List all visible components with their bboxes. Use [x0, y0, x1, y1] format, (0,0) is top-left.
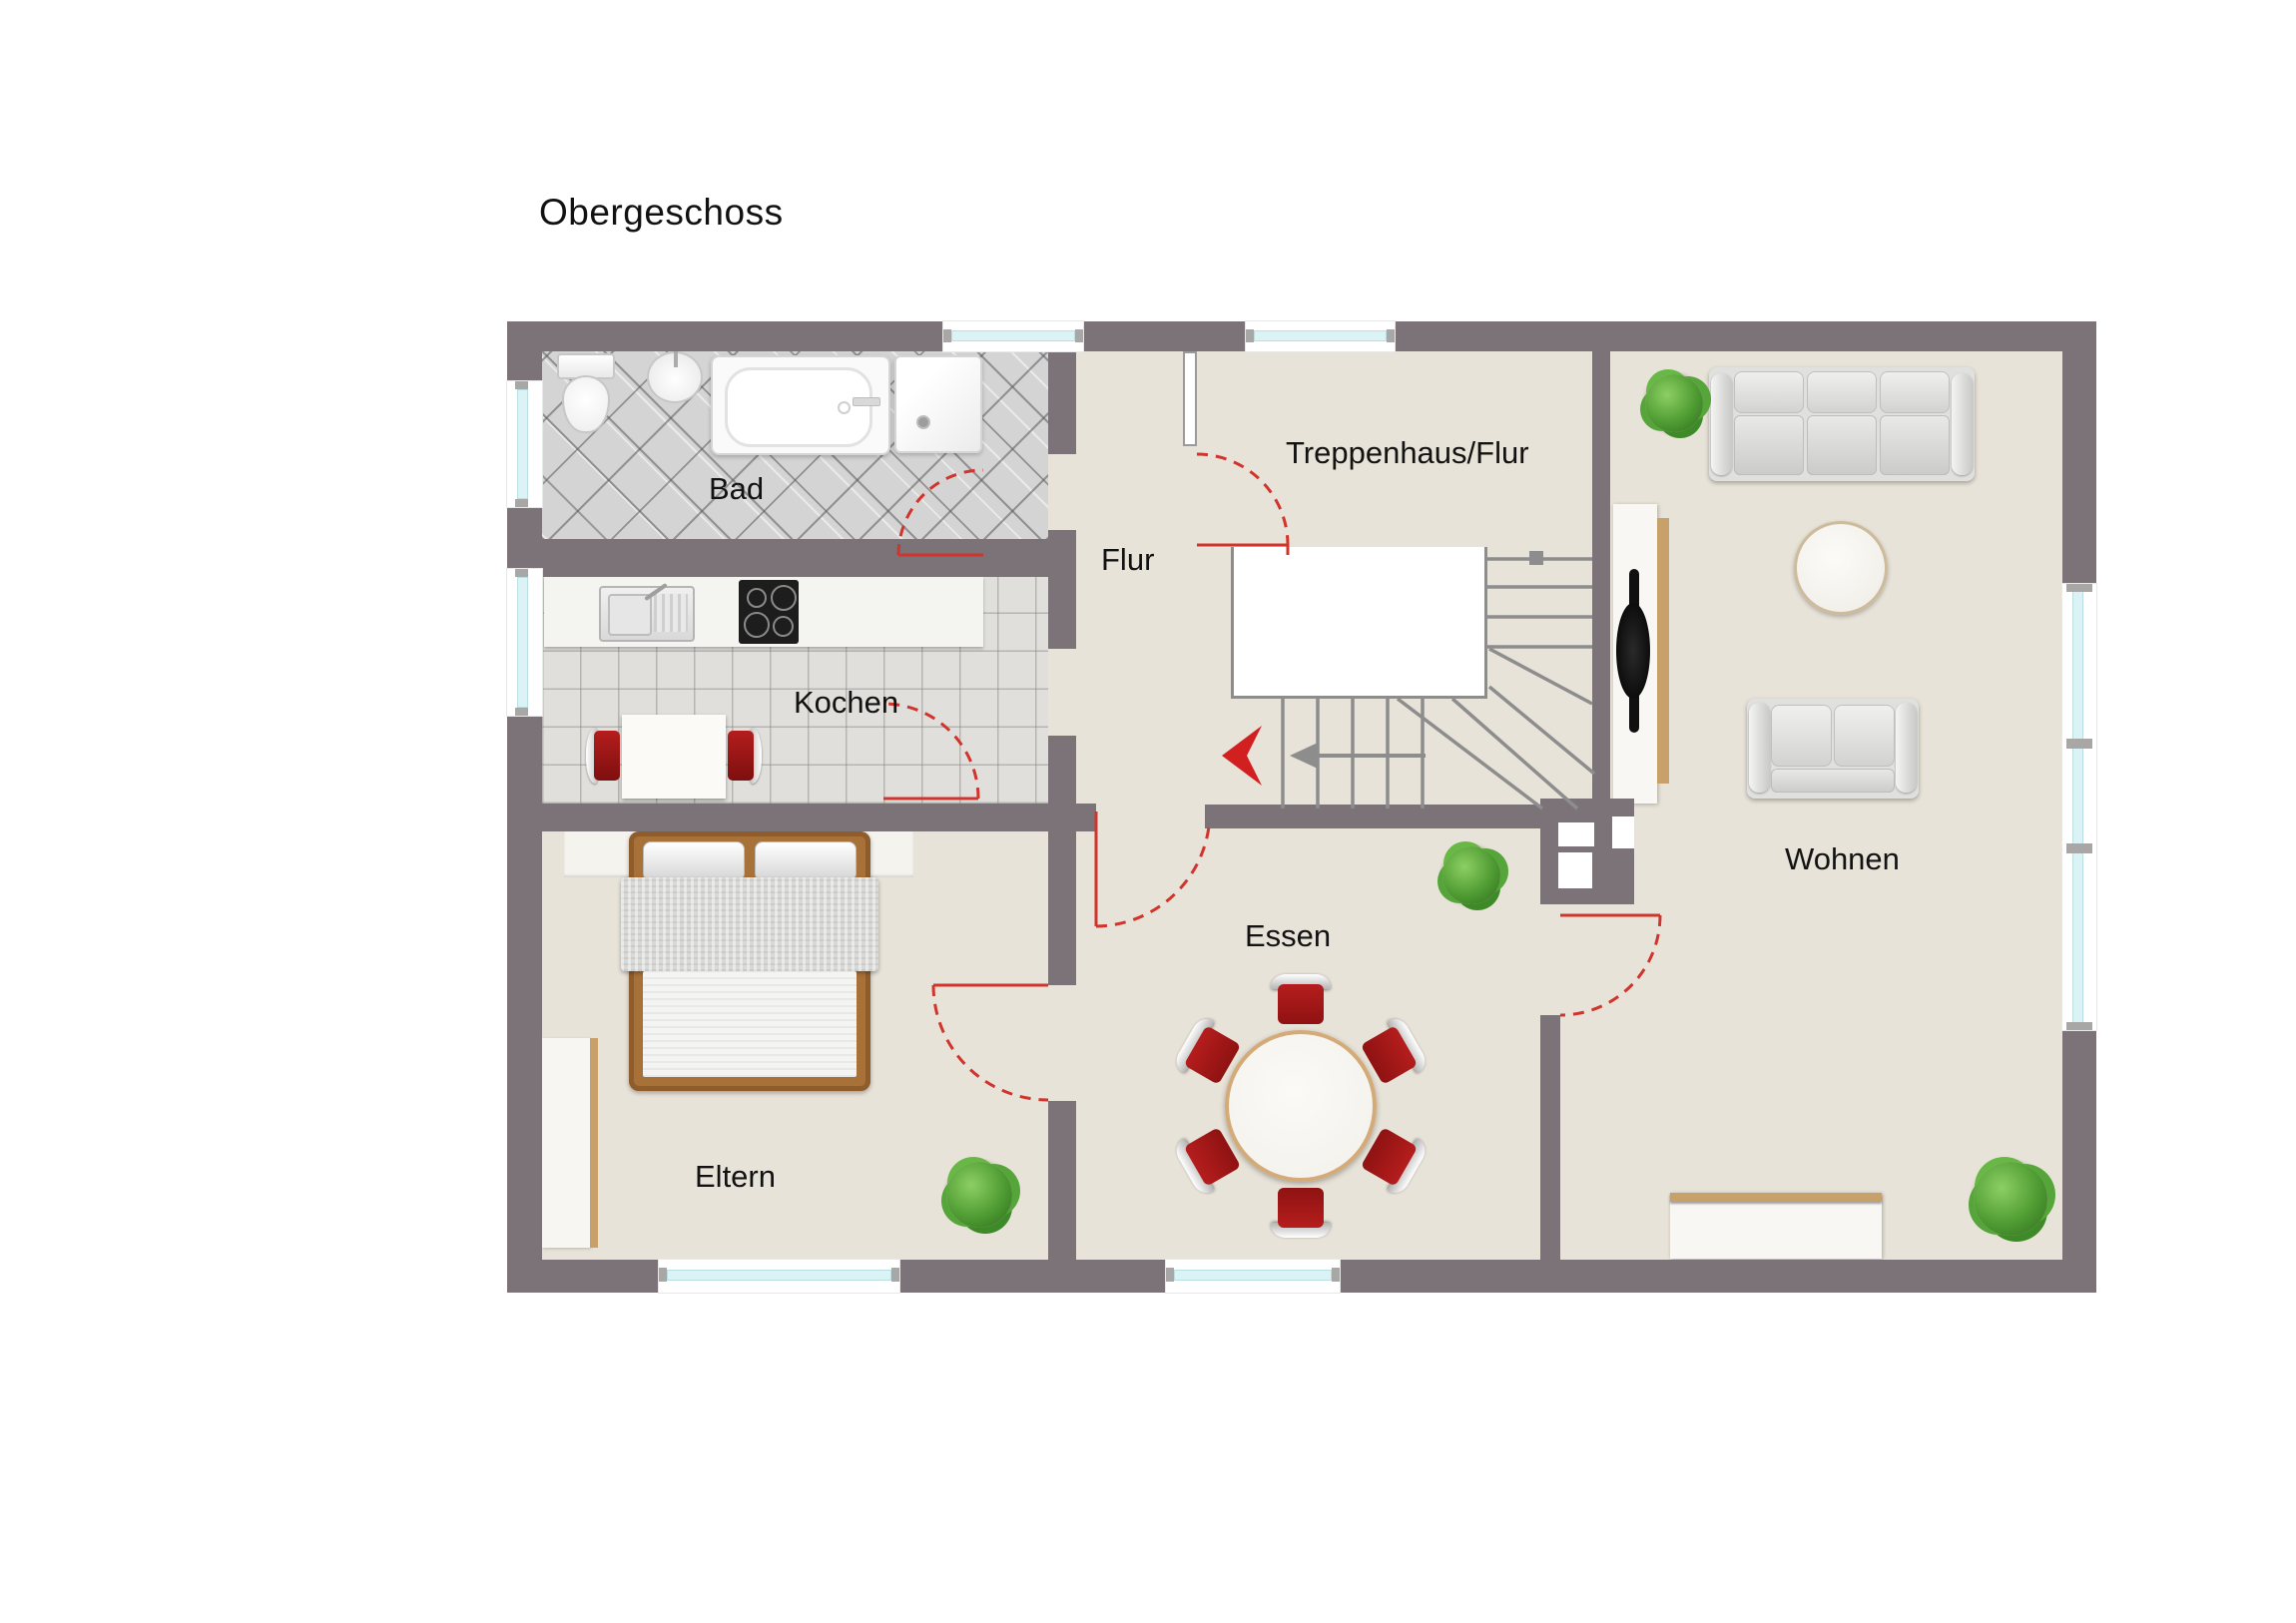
sofa-cushion — [1807, 371, 1877, 413]
window-cap — [1075, 329, 1083, 342]
wall-kochen-flur — [1048, 530, 1076, 649]
lowboard — [1670, 1193, 1882, 1259]
double-bed-icon — [629, 831, 870, 1091]
burner — [771, 585, 797, 611]
wardrobe — [542, 1038, 590, 1248]
burner — [747, 588, 767, 608]
dining-chair — [1269, 974, 1333, 1026]
bed-sheet — [643, 971, 857, 1077]
window-cap — [943, 329, 951, 342]
chimney-flue — [1558, 852, 1592, 888]
kitchen-chair — [589, 727, 625, 785]
sofa-seat — [1880, 415, 1950, 475]
room-label-essen: Essen — [1245, 918, 1331, 954]
sofa-2seat-icon — [1747, 699, 1919, 799]
window-cap — [2066, 584, 2092, 592]
room-label-kochen: Kochen — [794, 685, 898, 721]
window-cap — [515, 499, 528, 507]
wall-essen-wohnen — [1540, 1015, 1560, 1260]
cooktop-icon — [739, 580, 799, 644]
bathtub-icon — [711, 355, 890, 455]
window-cap — [1387, 329, 1395, 342]
window-glass — [517, 389, 528, 499]
window-glass — [2072, 590, 2083, 1025]
coffee-table-icon — [1794, 521, 1888, 615]
tv-screen-icon — [1616, 603, 1650, 699]
window-cap — [515, 569, 528, 577]
sofa-armrest — [1711, 373, 1732, 475]
sideboard-trim — [1657, 518, 1669, 784]
window-cap — [1246, 329, 1254, 342]
wall-kochen-eltern — [542, 804, 1076, 831]
window-mullion — [2066, 739, 2092, 749]
wall-flur-essen — [1048, 804, 1096, 831]
burner — [744, 612, 770, 638]
window-cap — [1332, 1268, 1340, 1282]
chimney-flue — [1558, 822, 1594, 846]
stair-railing — [1231, 547, 1487, 699]
burner — [773, 616, 794, 637]
kitchen-sink-icon — [599, 586, 695, 642]
sofa-3seat-icon — [1709, 367, 1975, 481]
blanket — [621, 877, 878, 971]
sofa-armrest — [1749, 703, 1770, 793]
bathroom-sink-icon — [647, 351, 703, 403]
sofa-cushion — [1771, 705, 1832, 767]
window-cap — [2066, 1022, 2092, 1030]
window-glass — [1174, 1270, 1332, 1281]
lowboard-top — [1670, 1193, 1882, 1202]
room-label-bad: Bad — [709, 471, 764, 507]
room-label-wohnen: Wohnen — [1785, 841, 1900, 877]
sofa-cushion — [1880, 371, 1950, 413]
room-label-eltern: Eltern — [695, 1159, 776, 1195]
room-label-treppenhaus: Treppenhaus/Flur — [1286, 435, 1529, 471]
dining-chair — [1269, 1186, 1333, 1238]
wall-bad-flur — [1048, 351, 1076, 454]
page-title: Obergeschoss — [539, 192, 784, 234]
pillow — [643, 841, 745, 881]
chimney-flue — [1612, 816, 1634, 848]
kitchen-chair — [723, 727, 759, 785]
kitchen-table — [622, 715, 726, 799]
room-label-flur: Flur — [1101, 542, 1154, 578]
sofa-seat — [1734, 415, 1804, 475]
plant-icon — [1974, 1162, 2047, 1236]
plant-icon — [946, 1162, 1012, 1228]
wall-eltern-essen — [1048, 831, 1076, 985]
window-glass — [1254, 330, 1387, 341]
window-cap — [659, 1268, 667, 1282]
sofa-cushion — [1834, 705, 1895, 767]
bathtub-faucet — [853, 397, 880, 406]
window-cap — [1166, 1268, 1174, 1282]
chimney-block — [1540, 799, 1634, 904]
window-glass — [517, 577, 528, 708]
bathtub-drain — [838, 401, 851, 414]
partition-wall — [1183, 351, 1197, 446]
shower-icon — [894, 355, 982, 453]
plant-icon — [1645, 374, 1703, 432]
sofa-armrest — [1952, 373, 1973, 475]
shower-drain — [916, 415, 930, 429]
sofa-seat — [1807, 415, 1877, 475]
sofa-armrest — [1896, 703, 1917, 793]
pillow — [755, 841, 857, 881]
window-glass — [951, 330, 1075, 341]
wall-eltern-essen — [1048, 1101, 1076, 1260]
wall-treppenhaus-wohnen — [1592, 351, 1610, 809]
plant-icon — [1442, 846, 1500, 904]
kitchen-drainboard — [654, 594, 688, 632]
sofa-seat — [1771, 769, 1895, 793]
wall-bad-kochen — [542, 539, 1076, 577]
sofa-cushion — [1734, 371, 1804, 413]
dining-table-icon — [1225, 1030, 1377, 1182]
wardrobe-trim — [590, 1038, 598, 1248]
window-cap — [515, 708, 528, 716]
window-glass — [667, 1270, 891, 1281]
window-cap — [515, 381, 528, 389]
window-cap — [891, 1268, 899, 1282]
window-mullion — [2066, 843, 2092, 853]
